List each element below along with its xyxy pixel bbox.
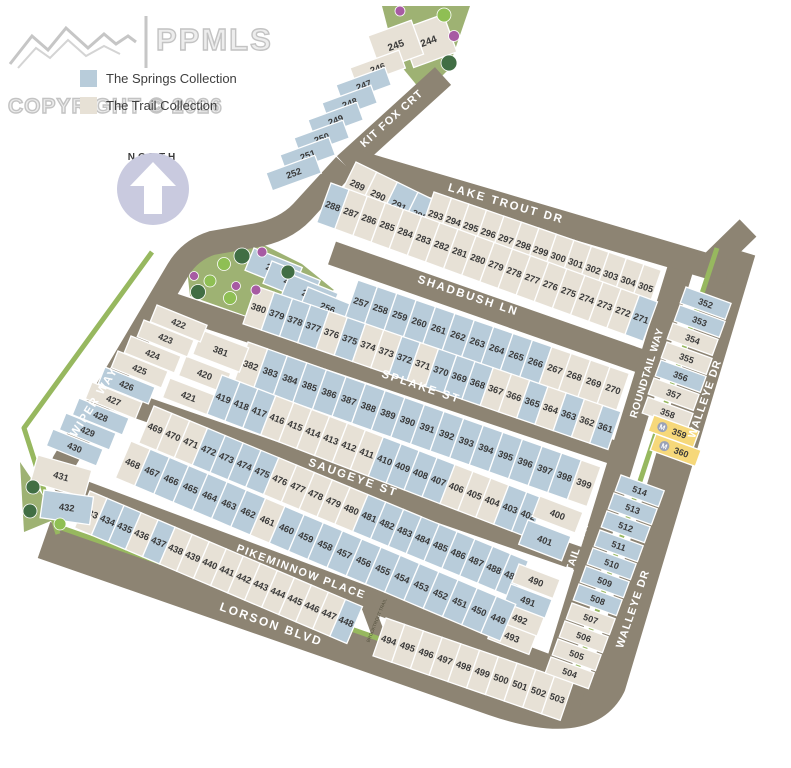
legend-item-springs: The Springs Collection [80, 70, 237, 87]
legend-label-springs: The Springs Collection [106, 71, 237, 86]
tree-icon [437, 8, 451, 22]
watermark-brand: PPMLS [156, 24, 273, 55]
tree-icon [218, 258, 231, 271]
legend: The Springs Collection The Trail Collect… [80, 70, 237, 124]
north-arrow-icon [114, 150, 192, 228]
lot: 432 [40, 490, 93, 525]
tree-icon [191, 285, 206, 300]
bush-icon [257, 247, 267, 257]
north-arrow: NORTH [114, 150, 192, 163]
tree-icon [224, 292, 237, 305]
site-plan-map: 2442452462472482492502512522892902912922… [0, 0, 791, 768]
bush-icon [251, 285, 261, 295]
legend-item-trail: The Trail Collection [80, 97, 237, 114]
legend-label-trail: The Trail Collection [106, 98, 217, 113]
bush-icon [190, 272, 199, 281]
tree-icon [441, 55, 457, 71]
tree-icon [281, 265, 295, 279]
tree-icon [54, 518, 66, 530]
tree-icon [23, 504, 37, 518]
bush-icon [449, 31, 460, 42]
bush-icon [395, 6, 405, 16]
trail-color-swatch [80, 97, 97, 114]
lot-number: 432 [58, 502, 75, 514]
springs-color-swatch [80, 70, 97, 87]
tree-icon [26, 480, 40, 494]
tree-icon [234, 248, 250, 264]
bush-icon [232, 282, 241, 291]
tree-icon [204, 275, 216, 287]
